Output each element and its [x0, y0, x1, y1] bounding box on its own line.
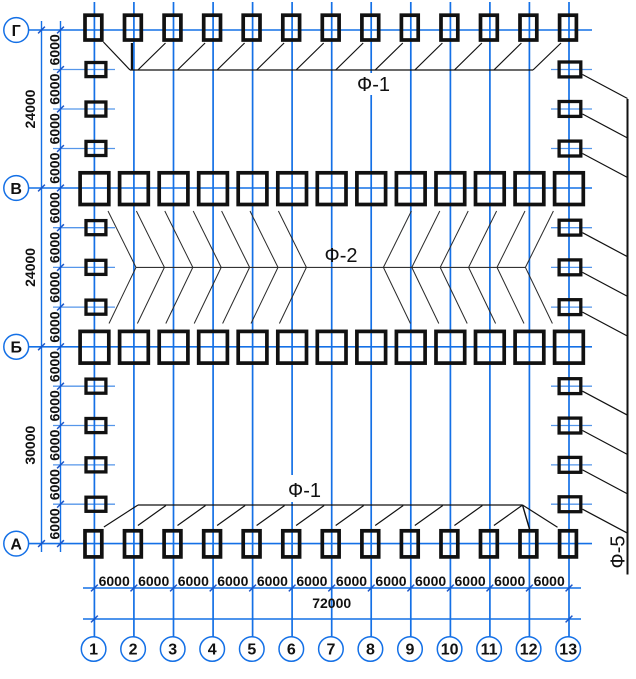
svg-text:6000: 6000: [47, 508, 63, 539]
svg-text:6000: 6000: [47, 311, 63, 342]
svg-text:6000: 6000: [178, 573, 209, 589]
svg-text:12: 12: [520, 642, 538, 659]
svg-text:6000: 6000: [296, 573, 327, 589]
svg-text:Ф-5: Ф-5: [608, 536, 630, 569]
svg-text:Ф-2: Ф-2: [325, 245, 358, 267]
svg-text:6000: 6000: [47, 232, 63, 263]
svg-text:6: 6: [287, 642, 296, 659]
svg-text:1: 1: [89, 642, 98, 659]
svg-text:6000: 6000: [375, 573, 406, 589]
svg-text:24000: 24000: [22, 248, 38, 287]
svg-text:6000: 6000: [47, 192, 63, 223]
svg-text:72000: 72000: [312, 595, 351, 611]
svg-text:6000: 6000: [47, 271, 63, 302]
svg-text:6000: 6000: [336, 573, 367, 589]
svg-text:Ф-1: Ф-1: [288, 480, 321, 502]
svg-text:6000: 6000: [534, 573, 565, 589]
svg-text:9: 9: [406, 642, 415, 659]
svg-text:6000: 6000: [47, 34, 63, 65]
svg-text:30000: 30000: [22, 426, 38, 465]
svg-text:24000: 24000: [22, 89, 38, 128]
svg-text:10: 10: [441, 642, 459, 659]
svg-text:5: 5: [247, 642, 256, 659]
svg-text:6000: 6000: [47, 351, 63, 382]
svg-text:6000: 6000: [494, 573, 525, 589]
svg-text:6000: 6000: [415, 573, 446, 589]
svg-text:8: 8: [366, 642, 375, 659]
svg-text:2: 2: [129, 642, 138, 659]
svg-text:6000: 6000: [257, 573, 288, 589]
svg-text:7: 7: [326, 642, 335, 659]
svg-text:13: 13: [559, 642, 577, 659]
svg-text:А: А: [10, 536, 22, 553]
svg-text:6000: 6000: [47, 152, 63, 183]
svg-text:4: 4: [208, 642, 217, 659]
svg-text:Г: Г: [12, 23, 21, 40]
svg-text:6000: 6000: [138, 573, 169, 589]
svg-text:11: 11: [481, 642, 498, 659]
svg-text:6000: 6000: [47, 73, 63, 104]
svg-text:6000: 6000: [47, 429, 63, 460]
svg-text:6000: 6000: [455, 573, 486, 589]
svg-text:6000: 6000: [99, 573, 130, 589]
svg-text:В: В: [10, 181, 22, 198]
svg-text:6000: 6000: [47, 113, 63, 144]
svg-text:3: 3: [168, 642, 177, 659]
svg-text:6000: 6000: [47, 469, 63, 500]
svg-text:6000: 6000: [47, 390, 63, 421]
svg-text:Ф-1: Ф-1: [357, 74, 390, 96]
svg-text:6000: 6000: [217, 573, 248, 589]
svg-text:Б: Б: [10, 340, 22, 357]
